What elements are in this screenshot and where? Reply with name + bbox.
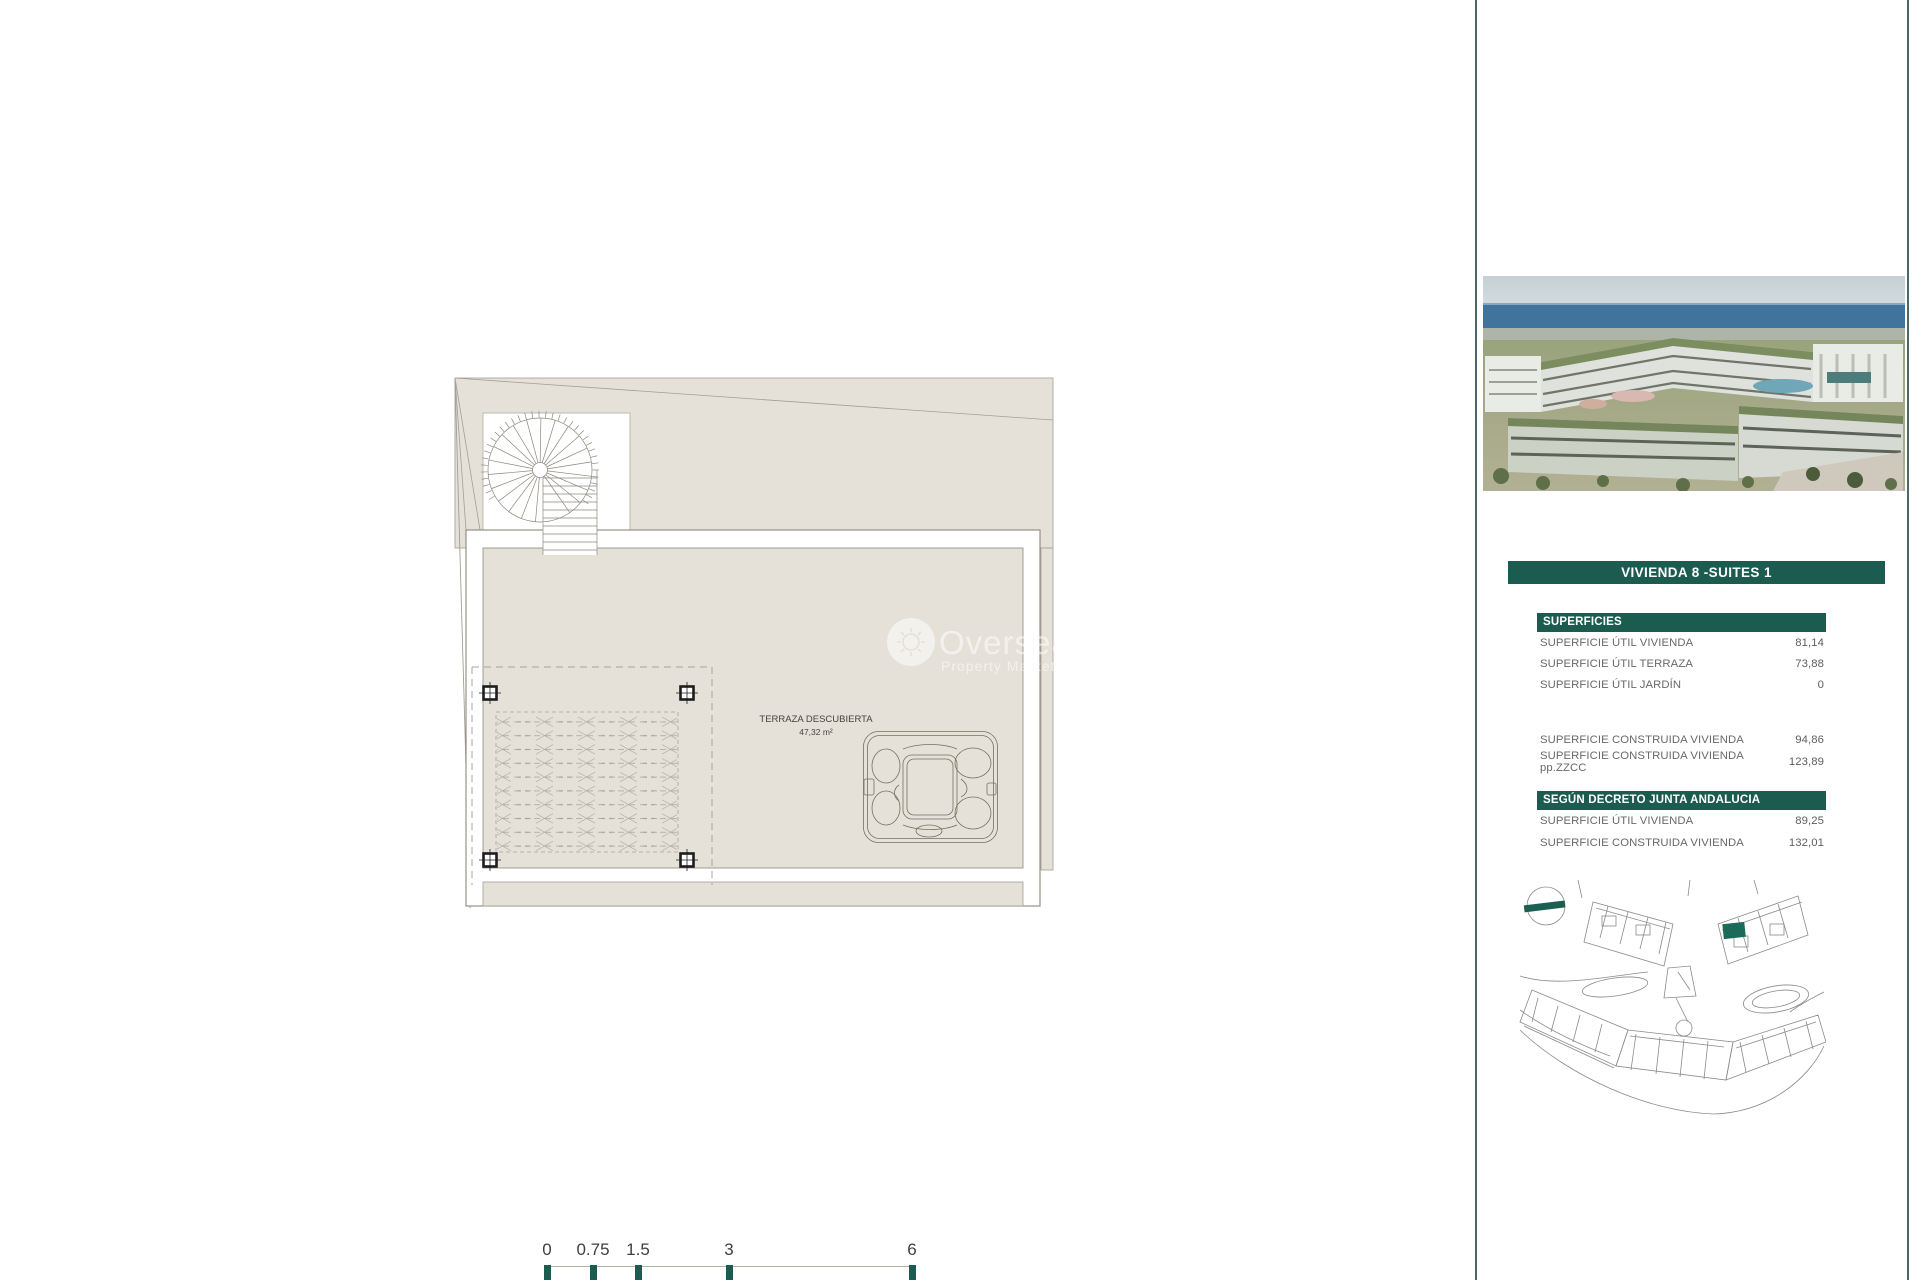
row-value: 132,01 [1789,837,1824,849]
site-plan [1518,880,1826,1122]
scale-label: 1.5 [621,1240,655,1260]
row-value: 73,88 [1795,658,1824,670]
row-label: SUPERFICIE ÚTIL TERRAZA [1540,658,1693,670]
page-right-border [1907,0,1909,1280]
highlighted-unit [1722,922,1745,939]
table-row: SUPERFICIE ÚTIL VIVIENDA 81,14 [1537,632,1826,653]
scale-tick [544,1265,551,1280]
row-label: SUPERFICIE ÚTIL VIVIENDA [1540,637,1693,649]
row-label: SUPERFICIE ÚTIL VIVIENDA [1540,815,1693,827]
vertical-divider [1475,0,1477,1280]
row-label: SUPERFICIE ÚTIL JARDÍN [1540,679,1681,691]
scale-label: 3 [721,1240,737,1260]
sun-logo-icon [887,618,935,666]
room-label: TERRAZA DESCUBIERTA [759,714,873,725]
table-row: SUPERFICIE ÚTIL VIVIENDA 89,25 [1537,810,1826,832]
scale-tick [590,1265,597,1280]
table-row: SUPERFICIE CONSTRUIDA VIVIENDA 94,86 [1537,729,1826,751]
row-value: 0 [1818,679,1824,691]
scale-label: 0.75 [571,1240,615,1260]
construida-table: SUPERFICIE CONSTRUIDA VIVIENDA 94,86 SUP… [1537,729,1826,773]
scale-tick [635,1265,642,1280]
row-label: SUPERFICIE CONSTRUIDA VIVIENDA pp.ZZCC [1540,750,1789,774]
scale-tick [909,1265,916,1280]
row-value: 94,86 [1795,734,1824,746]
watermark-line2: Property Market [941,658,1056,674]
north-bar [1524,900,1566,912]
sea [1483,304,1905,332]
brochure-page: TERRAZA DESCUBIERTA 47,32 m² Overseas [0,0,1920,1280]
watermark-line1: Overseas [939,624,1060,661]
scale-tick [726,1265,733,1280]
row-value: 81,14 [1795,637,1824,649]
room-area: 47,32 m² [799,727,833,737]
row-value: 89,25 [1795,815,1824,827]
row-label: SUPERFICIE CONSTRUIDA VIVIENDA [1540,837,1744,849]
row-value: 123,89 [1789,756,1824,768]
unit-title: VIVIENDA 8 -SUITES 1 [1508,561,1885,584]
table-row: SUPERFICIE CONSTRUIDA VIVIENDA pp.ZZCC 1… [1537,751,1826,773]
section-header: SEGÚN DECRETO JUNTA ANDALUCIA [1537,791,1826,810]
aerial-photo [1483,276,1905,491]
scale-label: 0 [539,1240,555,1260]
floor-plan: TERRAZA DESCUBIERTA 47,32 m² Overseas [450,370,1060,915]
scale-label: 6 [904,1240,920,1260]
superficies-table: SUPERFICIES SUPERFICIE ÚTIL VIVIENDA 81,… [1537,613,1826,695]
row-label: SUPERFICIE CONSTRUIDA VIVIENDA [1540,734,1744,746]
decreto-table: SEGÚN DECRETO JUNTA ANDALUCIA SUPERFICIE… [1537,791,1826,854]
table-row: SUPERFICIE ÚTIL TERRAZA 73,88 [1537,653,1826,674]
scale-bar: 0 0.75 1.5 3 6 [0,1238,960,1280]
section-header: SUPERFICIES [1537,613,1826,632]
table-row: SUPERFICIE ÚTIL JARDÍN 0 [1537,674,1826,695]
table-row: SUPERFICIE CONSTRUIDA VIVIENDA 132,01 [1537,832,1826,854]
watermark: Overseas Property Market [887,618,1060,674]
